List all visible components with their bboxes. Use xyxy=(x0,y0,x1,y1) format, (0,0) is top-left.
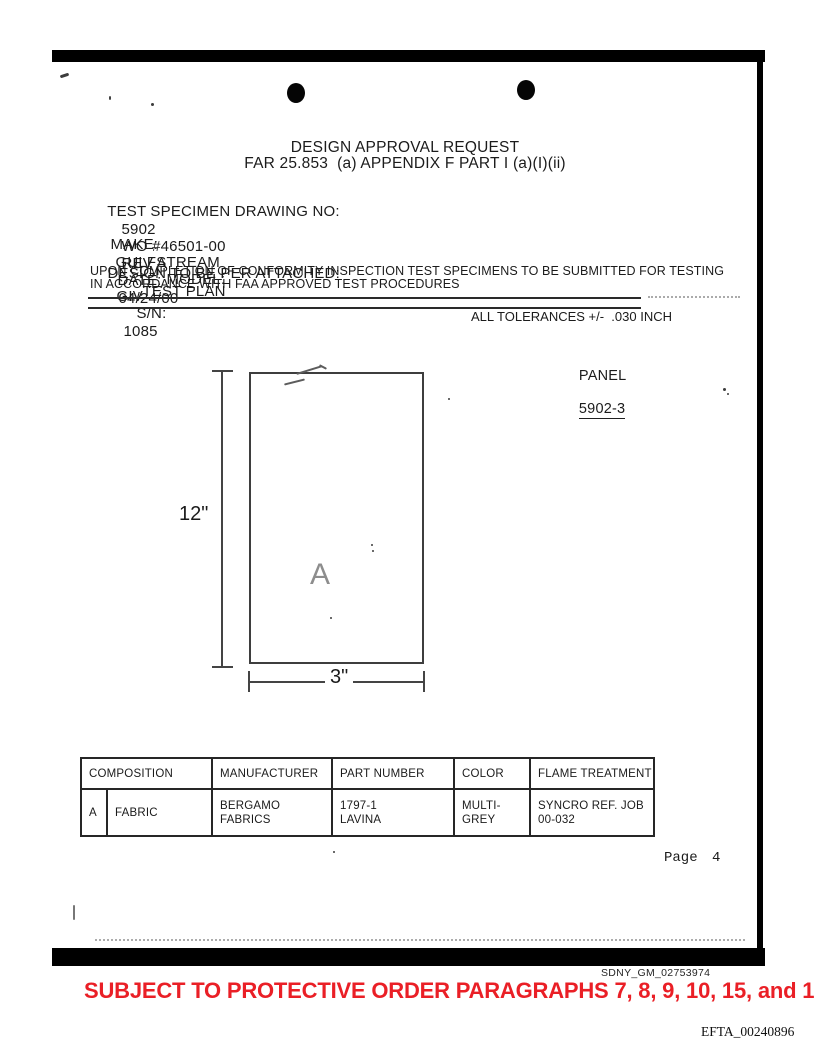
scanned-document-page: DESIGN APPROVAL REQUEST FAR 25.853 (a) A… xyxy=(0,0,815,1059)
punch-hole-left xyxy=(287,83,305,103)
header-manufacturer: MANUFACTURER xyxy=(213,759,333,790)
scan-speck xyxy=(109,96,111,100)
scan-speck xyxy=(727,393,729,395)
scan-speck xyxy=(723,388,726,391)
cell-flame-treatment: SYNCRO REF. JOB 00-032 xyxy=(531,790,653,835)
material-key-letter: A xyxy=(310,558,331,593)
sn-value: 1085 xyxy=(123,323,157,340)
table-row: A FABRIC BERGAMO FABRICS 1797-1 LAVINA M… xyxy=(82,790,653,835)
scan-speck xyxy=(448,398,450,400)
scan-speck xyxy=(73,905,75,920)
scan-noise-line xyxy=(95,939,745,941)
height-dimension-line xyxy=(221,371,223,668)
height-dimension-label: 12" xyxy=(179,503,208,526)
scan-border-bottom xyxy=(52,948,765,966)
header-color: COLOR xyxy=(455,759,531,790)
form-subtitle: FAR 25.853 (a) APPENDIX F PART I (a)(I)(… xyxy=(90,155,720,173)
cell-part-number: 1797-1 LAVINA xyxy=(333,790,455,835)
bates-number-efta: EFTA_00240896 xyxy=(701,1024,794,1040)
scan-speck xyxy=(333,851,335,853)
scan-speck xyxy=(330,617,332,619)
table-header-row: COMPOSITION MANUFACTURER PART NUMBER COL… xyxy=(82,759,653,790)
scan-speck xyxy=(371,544,373,546)
cell-composition: FABRIC xyxy=(108,790,213,835)
width-dimension-label: 3" xyxy=(325,666,353,689)
scan-scratch-mark xyxy=(319,364,327,370)
width-dimension-tick-right xyxy=(423,671,425,692)
header-part-number: PART NUMBER xyxy=(333,759,455,790)
height-dimension-tick-bottom xyxy=(212,666,233,668)
header-composition: COMPOSITION xyxy=(82,759,213,790)
scan-border-right xyxy=(757,50,763,966)
height-dimension-tick-top xyxy=(212,370,233,372)
protective-order-stamp: SUBJECT TO PROTECTIVE ORDER PARAGRAPHS 7… xyxy=(84,978,815,1003)
scan-speck xyxy=(372,550,374,552)
horizontal-rule-1-faint xyxy=(648,296,740,298)
cell-color: MULTI- GREY xyxy=(455,790,531,835)
note-line-2: IN ACCORDANCE WITH FAA APPROVED TEST PRO… xyxy=(90,277,460,291)
specimen-rectangle xyxy=(249,372,424,664)
scan-speck xyxy=(151,103,154,106)
punch-hole-right xyxy=(517,80,535,100)
scan-speck xyxy=(60,73,69,79)
page-number: Page 4 xyxy=(664,850,720,866)
panel-label: PANEL 5902-3 xyxy=(562,351,626,434)
composition-table: COMPOSITION MANUFACTURER PART NUMBER COL… xyxy=(80,757,655,837)
header-flame-treatment: FLAME TREATMENT xyxy=(531,759,653,790)
tolerances-note: ALL TOLERANCES +/- .030 INCH xyxy=(380,310,672,325)
cell-material-key: A xyxy=(82,790,108,835)
test-specimen-label: TEST SPECIMEN DRAWING NO: xyxy=(107,203,340,220)
panel-number: 5902-3 xyxy=(579,401,625,419)
horizontal-rule-1 xyxy=(88,297,641,299)
cell-manufacturer: BERGAMO FABRICS xyxy=(213,790,333,835)
width-dimension-tick-left xyxy=(248,671,250,692)
scan-border-top xyxy=(52,50,765,62)
